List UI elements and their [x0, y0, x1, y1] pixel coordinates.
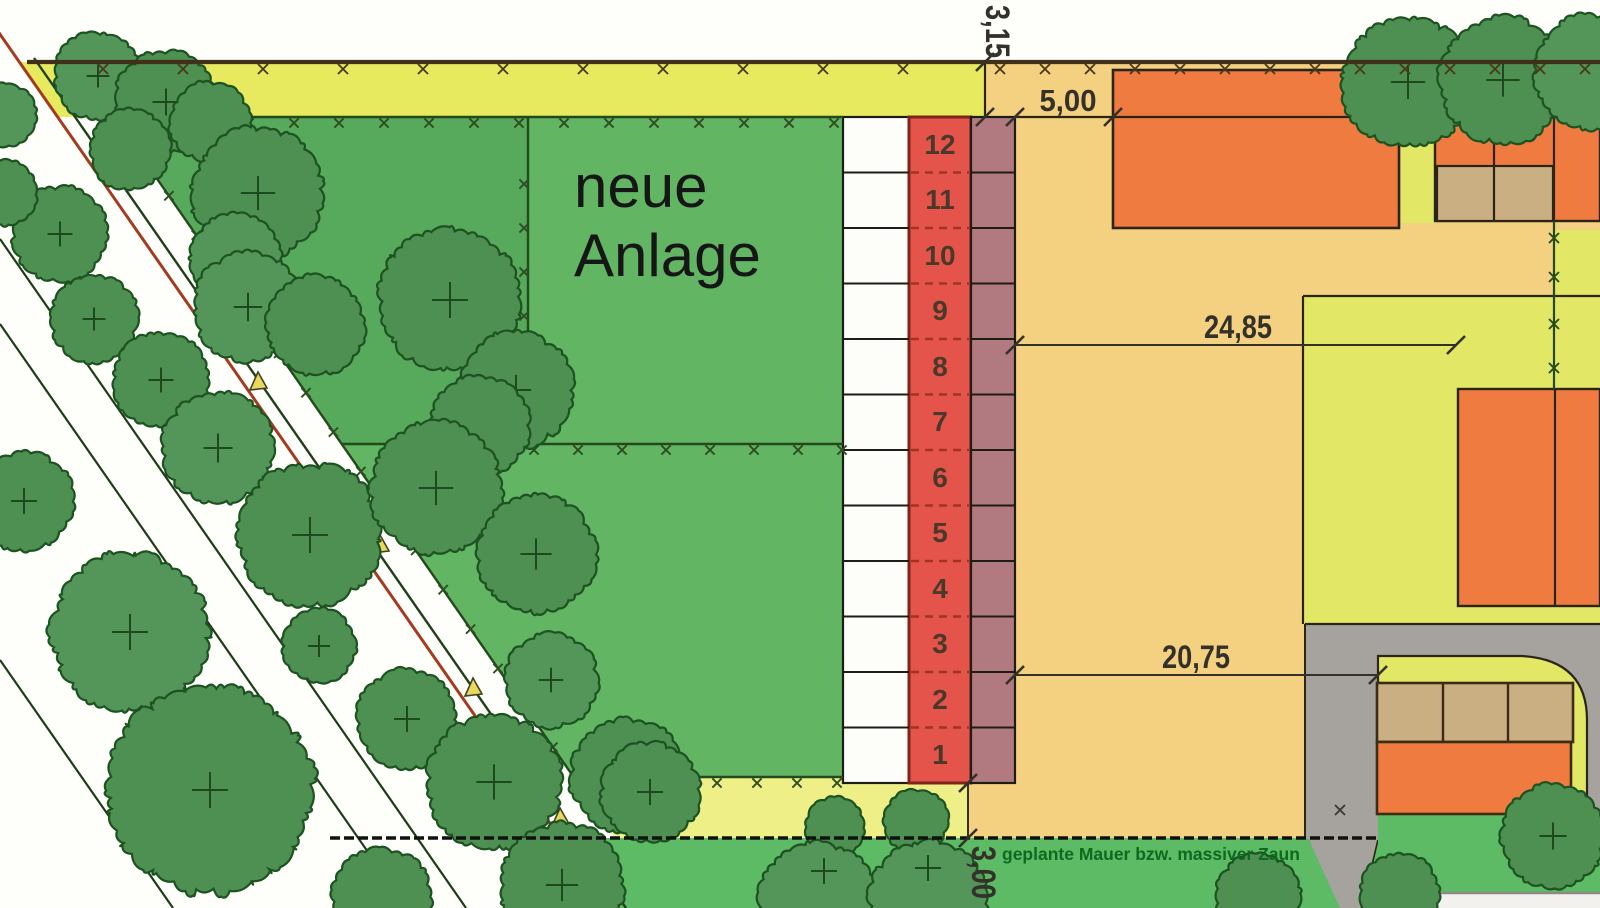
- svg-text:9: 9: [932, 295, 948, 326]
- svg-text:10: 10: [924, 240, 955, 271]
- svg-text:geplante Mauer bzw. massiver Z: geplante Mauer bzw. massiver Zaun: [1002, 844, 1300, 864]
- svg-text:3: 3: [932, 628, 948, 659]
- svg-text:4: 4: [932, 573, 948, 604]
- svg-text:Anlage: Anlage: [574, 222, 761, 289]
- svg-text:3,00: 3,00: [964, 846, 1002, 899]
- svg-text:20,75: 20,75: [1162, 639, 1230, 675]
- svg-text:2: 2: [932, 684, 948, 715]
- svg-text:8: 8: [932, 351, 948, 382]
- svg-text:1: 1: [932, 739, 948, 770]
- svg-text:5,00: 5,00: [1040, 83, 1097, 118]
- svg-text:12: 12: [924, 129, 955, 160]
- svg-text:24,85: 24,85: [1204, 309, 1272, 345]
- svg-text:7: 7: [932, 406, 948, 437]
- svg-text:3,15: 3,15: [978, 5, 1016, 58]
- svg-text:11: 11: [925, 184, 955, 215]
- svg-text:6: 6: [932, 462, 948, 493]
- svg-text:5: 5: [932, 517, 948, 548]
- svg-text:neue: neue: [574, 153, 707, 220]
